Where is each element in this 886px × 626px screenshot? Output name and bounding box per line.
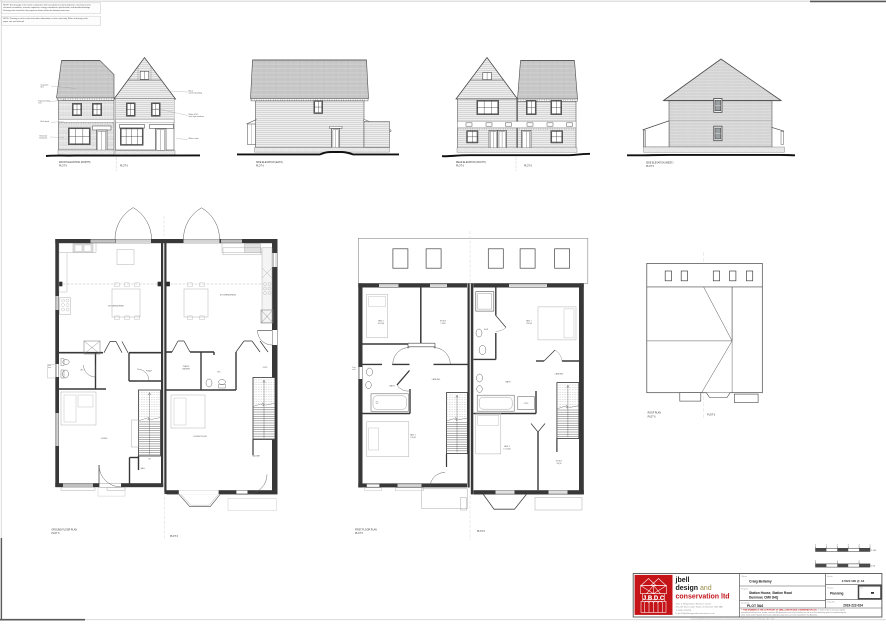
svg-text:tiles: tiles — [41, 86, 44, 89]
svg-text:Craig Bellamy: Craig Bellamy — [749, 580, 772, 584]
svg-text:PLOT 6: PLOT 6 — [707, 414, 716, 416]
svg-text:205-207 New London Road, Chelm: 205-207 New London Road, Chelmsford, CM2… — [676, 606, 724, 609]
svg-text:weatherboarding: weatherboarding — [189, 92, 202, 95]
svg-text:LANDING: LANDING — [555, 373, 564, 376]
svg-text:Brick band: Brick band — [41, 121, 50, 123]
svg-text:PLOT 6: PLOT 6 — [170, 536, 179, 538]
svg-text:C:\Users\jbell\JBDC\2019\222 S: C:\Users\jbell\JBDC\2019\222 Station Hou… — [690, 617, 774, 620]
svg-text:NOTE: this drawage is be read: NOTE: this drawage is be read in conjunc… — [3, 4, 90, 7]
svg-text:CUPD: CUPD — [263, 367, 269, 369]
svg-text:Project:: Project: — [741, 587, 749, 590]
svg-text:rev: rev — [861, 588, 864, 590]
svg-text:PLOT 6: PLOT 6 — [59, 166, 68, 168]
svg-text:REAR ELEVATION (SOUTH): REAR ELEVATION (SOUTH) — [456, 161, 486, 164]
svg-text:BED 1: BED 1 — [410, 434, 415, 436]
svg-text:PLOT 5: PLOT 5 — [646, 166, 655, 168]
svg-text:11SQM: 11SQM — [410, 437, 416, 439]
svg-text:NOTE: Drawing is not to scale: NOTE: Drawing is not to scale and writte… — [3, 17, 89, 20]
svg-text:BATH: BATH — [506, 381, 512, 384]
svg-text:PLOT 6: PLOT 6 — [648, 416, 657, 418]
svg-text:paper size and material: paper size and material — [3, 20, 24, 23]
svg-text:Planning: Planning — [830, 592, 844, 596]
svg-text:PLANT: PLANT — [146, 370, 153, 373]
svg-text:HALL: HALL — [141, 467, 146, 470]
svg-text:5.0SM: 5.0SM — [441, 323, 446, 325]
svg-text:FRONT ELEVATION (NORTH): FRONT ELEVATION (NORTH) — [59, 161, 91, 164]
svg-text:2019-222-024: 2019-222-024 — [843, 603, 863, 607]
svg-text:Status:: Status: — [827, 587, 834, 590]
svg-text:Station House, Station Road: Station House, Station Road — [749, 591, 792, 595]
svg-text:Scale:: Scale: — [827, 576, 833, 578]
svg-text:LANDING: LANDING — [432, 378, 441, 381]
svg-text:Dwg No:: Dwg No: — [827, 601, 836, 603]
svg-text:SIDE ELEVATION (WEST): SIDE ELEVATION (WEST) — [646, 162, 674, 165]
svg-text:Drawing to be issued for the p: Drawing to be issued for the purposes sh… — [3, 9, 69, 12]
svg-text:BED 2: BED 2 — [378, 321, 383, 323]
svg-text:feet: feet — [39, 102, 42, 105]
svg-text:brickwork: brickwork — [40, 138, 48, 140]
svg-text:HALLWAY: HALLWAY — [252, 455, 261, 458]
svg-text:1:50/1:100 @ A1: 1:50/1:100 @ A1 — [842, 579, 865, 583]
svg-text:T: 01245 783756: T: 01245 783756 — [676, 610, 692, 612]
svg-text:White render: White render — [189, 137, 200, 140]
svg-text:Suite 5, Hollys House Business: Suite 5, Hollys House Business Centre — [676, 603, 713, 606]
svg-text:conservation ltd: conservation ltd — [676, 594, 730, 601]
svg-text:13SQM: 13SQM — [526, 323, 532, 325]
svg-text:BED 1: BED 1 — [526, 321, 531, 323]
svg-text:jbell: jbell — [675, 577, 690, 584]
svg-text:8.4SQM: 8.4SQM — [378, 323, 385, 325]
svg-text:work, work and/or figured dime: work, work and/or figured dimensions. An… — [741, 613, 818, 616]
svg-text:Velux: Velux — [352, 367, 356, 369]
svg-text:6SQM: 6SQM — [557, 463, 562, 465]
svg-text:PLOT 6: PLOT 6 — [256, 166, 265, 168]
svg-text:E: jbell@jbelldesignandconserv: E: jbell@jbelldesignandconservation.co.u… — [676, 612, 716, 615]
svg-text:STUDY: STUDY — [440, 321, 447, 323]
svg-text:electrical consultants, acoust: electrical consultants, acoustic enginee… — [3, 6, 90, 9]
svg-text:PLOT 6: PLOT 6 — [120, 166, 129, 168]
svg-text:12.5SQM: 12.5SQM — [503, 449, 511, 451]
svg-text:LIVING ROOM: LIVING ROOM — [193, 436, 207, 438]
svg-text:ROOF PLAN: ROOF PLAN — [648, 412, 662, 415]
svg-text:GROUND FLOOR PLAN: GROUND FLOOR PLAN — [52, 529, 78, 532]
svg-text:PLOT 6: PLOT 6 — [456, 166, 465, 168]
svg-text:PLOT 6: PLOT 6 — [477, 531, 486, 533]
svg-text:PLOT 6: PLOT 6 — [524, 166, 533, 168]
svg-text:Client:: Client: — [741, 575, 748, 578]
svg-text:PLOT 5: PLOT 5 — [355, 533, 364, 535]
svg-text:BATH: BATH — [390, 385, 396, 388]
svg-text:PLOT 6: PLOT 6 — [52, 533, 61, 535]
svg-text:Side: Side — [48, 365, 51, 367]
svg-text:J.B.D.C: J.B.D.C — [643, 596, 665, 602]
svg-text:STUDY: STUDY — [556, 461, 563, 463]
svg-text:FIRST FLOOR PLAN: FIRST FLOOR PLAN — [355, 529, 377, 532]
svg-text:KITCHEN/DINING: KITCHEN/DINING — [220, 295, 237, 297]
svg-text:sash style windows: sash style windows — [189, 115, 204, 118]
svg-text:LIVING: LIVING — [101, 438, 108, 440]
svg-text:SIDE ELEVATION (EAST): SIDE ELEVATION (EAST) — [256, 161, 283, 164]
svg-text:Dunmow, CM6 3HQ: Dunmow, CM6 3HQ — [749, 596, 779, 600]
svg-text:KITCHEN/DINER: KITCHEN/DINER — [108, 306, 124, 308]
svg-text:BED 3: BED 3 — [504, 446, 509, 448]
svg-text:design and: design and — [676, 585, 712, 592]
svg-text:1:100: 1:100 — [871, 550, 877, 552]
svg-text:door: door — [48, 367, 52, 369]
svg-text:LARDER: LARDER — [182, 368, 190, 371]
svg-text:PLOT 5&6: PLOT 5&6 — [747, 604, 763, 608]
